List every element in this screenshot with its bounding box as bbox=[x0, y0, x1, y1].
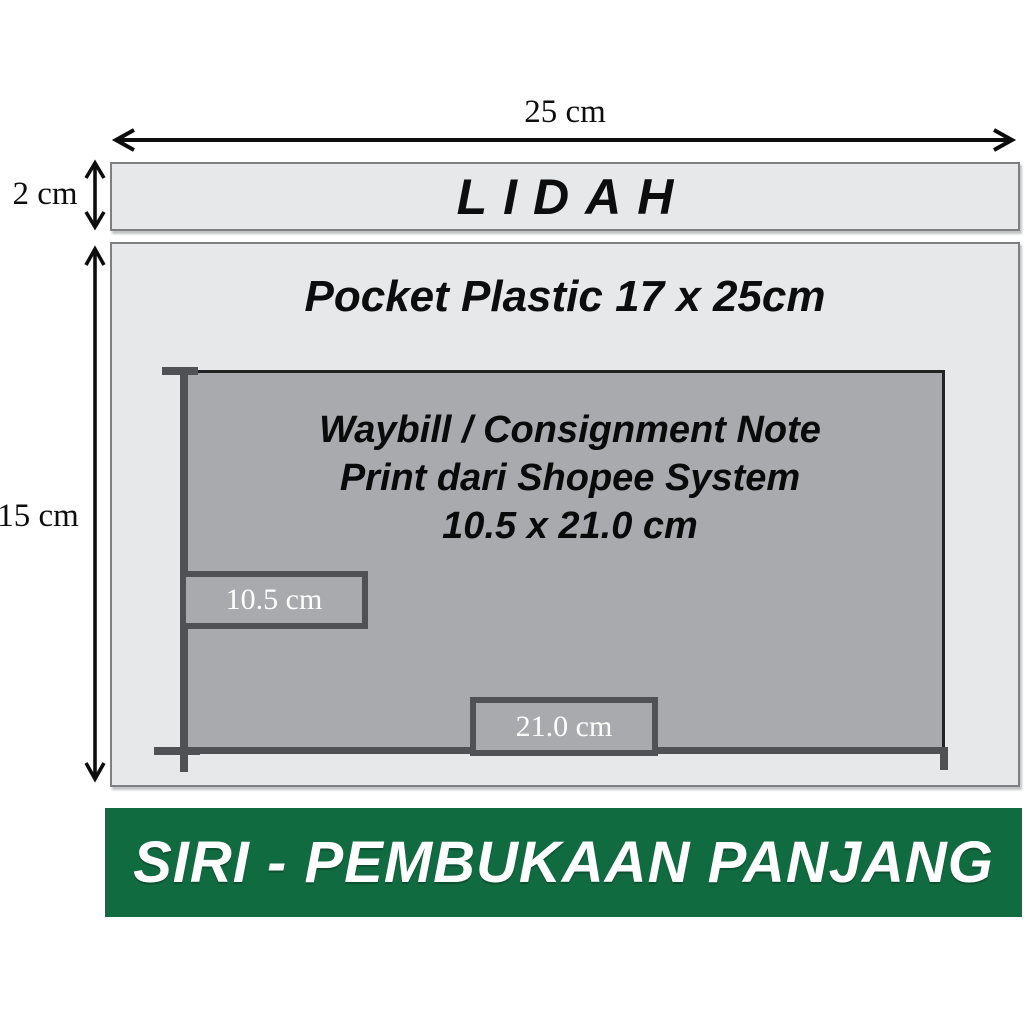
pocket-title: Pocket Plastic 17 x 25cm bbox=[110, 272, 1020, 322]
horizontal-dimension-arrow-icon bbox=[108, 126, 1020, 154]
waybill-line-3: 10.5 x 21.0 cm bbox=[442, 502, 698, 550]
waybill-width-box: 10.5 cm bbox=[180, 571, 368, 629]
banner-text: SIRI - PEMBUKAAN PANJANG bbox=[105, 808, 1022, 917]
pocket-height-arrow-icon bbox=[82, 244, 108, 784]
waybill-line-1: Waybill / Consignment Note bbox=[319, 406, 821, 454]
dimension-right-tick bbox=[940, 752, 948, 770]
flap-height-label: 2 cm bbox=[6, 178, 84, 211]
pocket-height-label: 15 cm bbox=[0, 500, 82, 533]
flap-bar: LIDAH bbox=[110, 162, 1020, 231]
series-banner: SIRI - PEMBUKAAN PANJANG bbox=[105, 808, 1022, 917]
flap-height-arrow-icon bbox=[82, 158, 108, 232]
waybill-length-label: 21.0 cm bbox=[516, 710, 613, 744]
dimension-bracket-vertical bbox=[180, 367, 188, 757]
waybill-text: Waybill / Consignment Note Print dari Sh… bbox=[220, 406, 920, 550]
product-dimension-diagram: 25 cm 2 cm LIDAH 15 cm Pocket Plastic 17… bbox=[0, 0, 1024, 1024]
dimension-bracket-bottom-cap bbox=[154, 747, 200, 755]
waybill-length-box: 21.0 cm bbox=[470, 697, 658, 756]
waybill-line-2: Print dari Shopee System bbox=[340, 454, 800, 502]
dimension-bracket-top-cap bbox=[162, 367, 198, 375]
dimension-bracket-bottom-tick bbox=[180, 755, 188, 772]
flap-label: LIDAH bbox=[112, 164, 1018, 229]
width-dimension-label: 25 cm bbox=[110, 96, 1020, 129]
waybill-width-label: 10.5 cm bbox=[226, 583, 323, 617]
